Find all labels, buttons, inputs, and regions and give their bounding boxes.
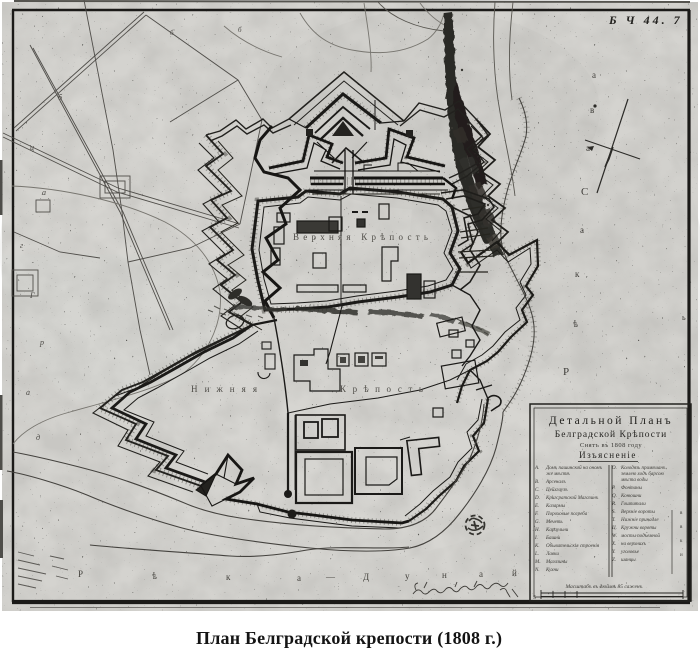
svg-text:Р: Р bbox=[563, 366, 569, 378]
svg-text:Конюшни: Конюшни bbox=[620, 494, 642, 499]
svg-text:д: д bbox=[36, 433, 40, 442]
svg-text:ѣ: ѣ bbox=[152, 571, 157, 581]
svg-text:P.: P. bbox=[611, 486, 616, 491]
svg-text:к: к bbox=[226, 572, 231, 582]
svg-text:M.: M. bbox=[534, 560, 540, 565]
svg-text:ь: ь bbox=[682, 313, 686, 322]
svg-text:Г: Г bbox=[29, 291, 35, 300]
svg-text:Гошпитали: Гошпитали bbox=[620, 502, 646, 507]
svg-text:б: б bbox=[170, 29, 174, 37]
svg-text:Верхняя Крѣпость: Верхняя Крѣпость bbox=[293, 232, 430, 242]
svg-text:I.: I. bbox=[534, 536, 538, 541]
svg-text:Ц.: Ц. bbox=[611, 526, 617, 531]
svg-text:Караульни: Караульни bbox=[545, 528, 569, 533]
svg-text:Лавки: Лавки bbox=[545, 552, 559, 557]
svg-text:а: а bbox=[297, 573, 301, 583]
svg-text:Кухни: Кухни bbox=[545, 568, 559, 573]
svg-text:A.: A. bbox=[534, 466, 539, 471]
svg-text:O.: O. bbox=[612, 466, 617, 471]
svg-text:Цейхгаузъ: Цейхгаузъ bbox=[545, 487, 568, 493]
svg-text:G.: G. bbox=[535, 520, 540, 525]
svg-text:Арсеналъ: Арсеналъ bbox=[545, 480, 566, 485]
svg-text:Р: Р bbox=[78, 569, 83, 579]
svg-text:—: — bbox=[325, 572, 336, 582]
svg-text:Обывательскія строенія: Обывательскія строенія bbox=[546, 544, 600, 549]
svg-text:р: р bbox=[39, 338, 44, 347]
svg-text:мѣста воды: мѣста воды bbox=[620, 478, 648, 483]
svg-text:ѣ: ѣ bbox=[573, 319, 578, 329]
svg-text:Белградской Крѣпости: Белградской Крѣпости bbox=[555, 429, 667, 440]
svg-text:шанцы: шанцы bbox=[621, 558, 636, 563]
svg-text:г: г bbox=[20, 241, 23, 250]
svg-text:уголовье: уголовье bbox=[620, 550, 640, 555]
svg-text:Z.: Z. bbox=[612, 558, 616, 563]
svg-text:в: в bbox=[590, 105, 594, 115]
svg-text:ц: ц bbox=[30, 143, 34, 152]
svg-text:и: и bbox=[680, 553, 683, 558]
svg-text:й: й bbox=[512, 568, 517, 578]
svg-text:Q.: Q. bbox=[612, 494, 617, 499]
svg-text:Верхніе вороты: Верхніе вороты bbox=[621, 510, 655, 515]
svg-text:Колодязь примѣчанъ: Колодязь примѣчанъ bbox=[620, 466, 666, 471]
svg-text:н: н bbox=[442, 570, 447, 580]
svg-text:Нижніе принадле: Нижніе принадле bbox=[620, 518, 659, 523]
svg-text:Кружни вороты: Кружни вороты bbox=[620, 526, 657, 531]
svg-text:Изъясненіе: Изъясненіе bbox=[579, 450, 637, 460]
svg-text:у: у bbox=[405, 571, 410, 581]
svg-text:T.: T. bbox=[612, 518, 616, 523]
svg-text:N.: N. bbox=[534, 568, 540, 573]
svg-text:а: а bbox=[592, 70, 596, 80]
svg-text:к: к bbox=[575, 269, 580, 279]
svg-text:Детальной Планъ: Детальной Планъ bbox=[549, 415, 673, 427]
svg-text:а: а bbox=[586, 143, 590, 153]
svg-text:K.: K. bbox=[534, 544, 540, 549]
svg-text:б: б bbox=[238, 26, 242, 34]
svg-text:Магазины: Магазины bbox=[545, 560, 568, 565]
svg-text:План Белградской крепости (: План Белградской крепости (1808 г.) bbox=[196, 628, 502, 649]
svg-text:а: а bbox=[479, 569, 483, 579]
svg-text:5: 5 bbox=[533, 595, 536, 601]
svg-text:мосты подъемной: мосты подъемной bbox=[620, 533, 660, 539]
svg-text:Д: Д bbox=[363, 572, 369, 582]
svg-text:Кригсратской Магазинъ: Кригсратской Магазинъ bbox=[545, 495, 599, 501]
svg-text:S.: S. bbox=[612, 510, 616, 515]
svg-text:Башни: Башни bbox=[545, 536, 561, 541]
svg-text:на верхнихъ: на верхнихъ bbox=[621, 542, 646, 547]
svg-text:же мѣстѣ: же мѣстѣ bbox=[546, 472, 570, 477]
svg-text:Фонтаны: Фонтаны bbox=[621, 486, 643, 491]
svg-text:Казармы: Казармы bbox=[545, 504, 566, 509]
svg-text:R.: R. bbox=[611, 502, 616, 507]
svg-text:Пороховые погреба: Пороховые погреба bbox=[545, 512, 588, 517]
svg-text:F.: F. bbox=[534, 512, 539, 517]
svg-text:W.: W. bbox=[612, 534, 617, 539]
svg-text:а: а bbox=[42, 188, 46, 197]
svg-text:Масштабъ въ дюймѣ 85 саженъ: Масштабъ въ дюймѣ 85 саженъ bbox=[565, 583, 643, 590]
svg-text:B.: B. bbox=[535, 480, 539, 485]
svg-text:H.: H. bbox=[534, 528, 540, 533]
svg-text:а: а bbox=[26, 388, 30, 397]
svg-text:Y.: Y. bbox=[612, 550, 616, 555]
svg-text:С: С bbox=[581, 186, 588, 198]
svg-text:Домъ пашинской на ономъ: Домъ пашинской на ономъ bbox=[545, 465, 603, 471]
svg-text:E.: E. bbox=[534, 504, 539, 509]
svg-text:D.: D. bbox=[534, 496, 540, 501]
svg-text:C.: C. bbox=[535, 488, 540, 493]
svg-text:а: а bbox=[580, 225, 584, 235]
svg-text:Б Ч 44. 7: Б Ч 44. 7 bbox=[608, 13, 683, 27]
svg-text:L.: L. bbox=[534, 552, 539, 557]
svg-text:Мечеть: Мечеть bbox=[545, 520, 563, 525]
svg-text:Снятъ въ 1808 году: Снятъ въ 1808 году bbox=[580, 442, 643, 449]
svg-text:X.: X. bbox=[611, 542, 616, 547]
svg-text:землею ходъ барсою: землею ходъ барсою bbox=[620, 472, 664, 477]
